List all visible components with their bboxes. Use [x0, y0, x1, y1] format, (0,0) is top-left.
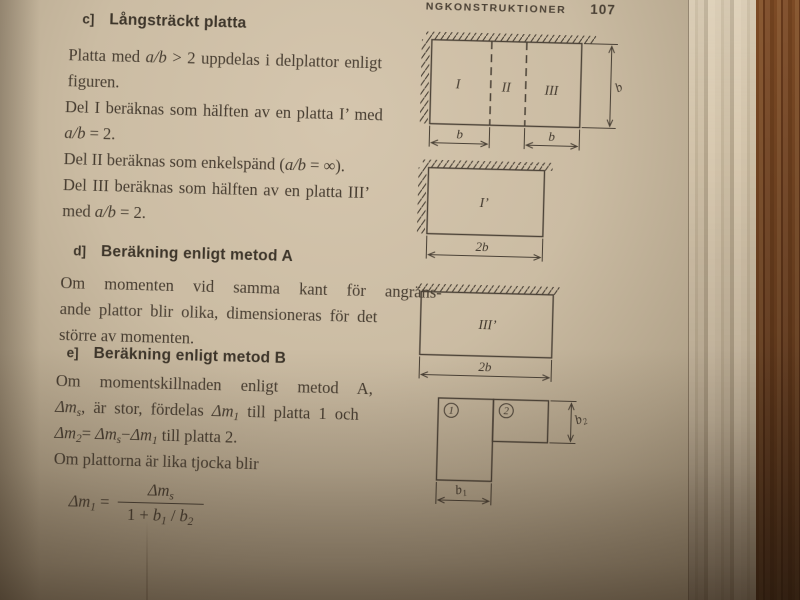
figure-plate-I-prime: I’ 2b [414, 153, 637, 277]
heading-e-label: e] [66, 345, 78, 360]
division-line-1 [490, 41, 492, 125]
book-page-edges [688, 0, 757, 600]
plate-1-number: 1 [448, 406, 454, 417]
heading-c-label: c] [82, 11, 94, 26]
dimension-label: b [456, 126, 463, 141]
book-page-photo: NGKONSTRUKTIONER107 c] Långsträckt platt… [0, 0, 800, 600]
dimension-line-2b [428, 255, 540, 258]
formula-moment-distribution: Δm1 = Δms 1 + b1 / b2 [68, 478, 204, 527]
figure-plate-division: I II III b b b [417, 25, 640, 159]
heading-c-title: Långsträckt platta [109, 11, 247, 33]
page-header: NGKONSTRUKTIONER107 [426, 0, 616, 19]
plate-1-outline [436, 398, 493, 481]
formula-numerator: Δms [117, 480, 204, 504]
support-hatch-left [417, 167, 427, 233]
plate-label: III’ [477, 317, 497, 333]
support-hatch-left [420, 39, 430, 123]
paragraph-metod-b: Om momentskillnaden enligt metod A, Δms,… [53, 368, 373, 480]
plate-label: I’ [479, 195, 490, 210]
running-title: NGKONSTRUKTIONER [426, 0, 567, 16]
dimension-label: b [548, 129, 555, 144]
dimension-line-b-left-part [431, 143, 487, 144]
page-number: 107 [590, 2, 616, 18]
dimension-line-b-right-part [526, 145, 577, 146]
dimension-label-b1: b1 [454, 481, 468, 500]
part-label-I: I [455, 76, 462, 91]
paragraph-del1: Del I beräknas som hälften av en platta … [64, 94, 383, 154]
formula-lhs: Δm1 = [68, 491, 109, 512]
page-sheet: NGKONSTRUKTIONER107 c] Långsträckt platt… [0, 0, 800, 600]
heading-e-title: Beräkning enligt metod B [93, 345, 286, 368]
part-label-III: III [543, 83, 559, 98]
division-line-2 [525, 42, 527, 126]
paragraph-intro: Platta med a/b > 2 uppdelas i delplattor… [67, 42, 382, 102]
dimension-line-2b [421, 374, 549, 377]
figure-adjoining-plates: 1 2 b2 b1 [422, 388, 600, 521]
dimension-label: 2b [475, 239, 489, 254]
dimension-label: b [612, 79, 625, 96]
heading-c: c] Långsträckt platta [82, 10, 247, 32]
formula-denominator: 1 + b1 / b2 [117, 502, 204, 527]
paragraph-metod-a: Om momenten vid samma kant för angräns- … [59, 258, 443, 358]
dimension-line-b-right [610, 46, 612, 126]
dimension-label: 2b [478, 359, 492, 374]
part-label-II: II [501, 79, 513, 94]
wood-table-surface [756, 0, 800, 600]
plate-2-number: 2 [503, 406, 509, 417]
dimension-line-b2 [570, 403, 571, 441]
dimension-line-b1 [438, 500, 489, 501]
dimension-label-b2: b2 [572, 409, 589, 429]
heading-d-label: d] [73, 243, 86, 258]
formula-fraction: Δms 1 + b1 / b2 [117, 480, 205, 527]
paragraph-del3: Del III beräknas som hälften av en platt… [62, 172, 370, 232]
figure-plate-III-prime: III’ 2b [411, 277, 634, 391]
